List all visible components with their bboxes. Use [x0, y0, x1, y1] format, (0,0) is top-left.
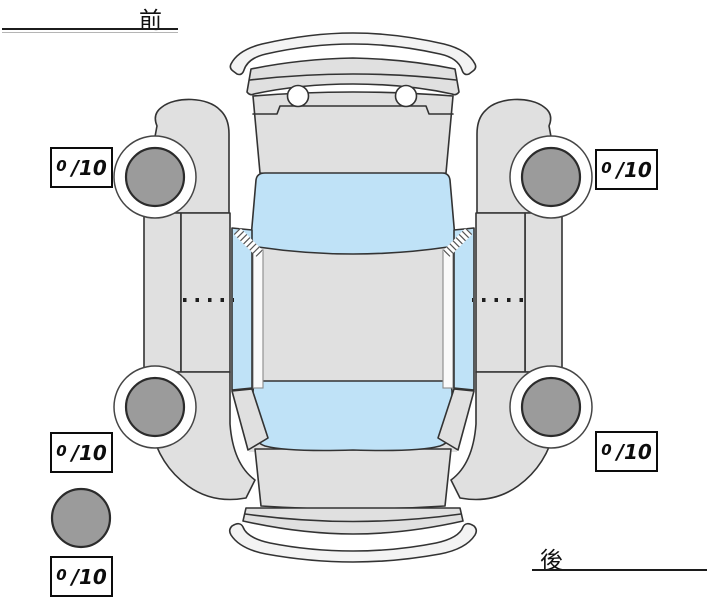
tread-score-rear-left: 0/10 [50, 432, 113, 473]
tread-score-front-left: 0/10 [50, 147, 113, 188]
hood [253, 92, 453, 177]
right-side-panels [438, 99, 592, 499]
headlight-left [288, 86, 309, 107]
tread-max: /10 [72, 565, 107, 589]
left-side-panels [114, 99, 268, 499]
tread-score-front-right: 0/10 [595, 149, 658, 190]
tread-score-rear-right: 0/10 [595, 431, 658, 472]
rear-window [253, 381, 452, 451]
side-window [232, 228, 252, 390]
spare-tire [52, 489, 110, 547]
tread-score-spare: 0/10 [50, 556, 113, 597]
tread-max: /10 [72, 441, 107, 465]
tread-max: /10 [617, 440, 652, 464]
tread-value: 0 [56, 442, 66, 460]
tread-value: 0 [56, 566, 66, 584]
front-wheel [126, 148, 184, 206]
tread-max: /10 [72, 156, 107, 180]
rear-wheel [126, 378, 184, 436]
tread-value: 0 [56, 157, 66, 175]
car-center-body [230, 33, 477, 562]
door-panel-inner [181, 213, 230, 372]
tread-value: 0 [601, 159, 611, 177]
tread-value: 0 [601, 441, 611, 459]
door-panel-outer [144, 213, 181, 372]
rear-divider-line [532, 569, 707, 573]
car-top-view-drawing [0, 0, 711, 600]
car-condition-diagram: 前 [0, 0, 711, 600]
headlight-right [396, 86, 417, 107]
windshield [251, 173, 455, 254]
tread-max: /10 [617, 158, 652, 182]
trunk [255, 449, 451, 509]
sill-gap [253, 250, 263, 388]
